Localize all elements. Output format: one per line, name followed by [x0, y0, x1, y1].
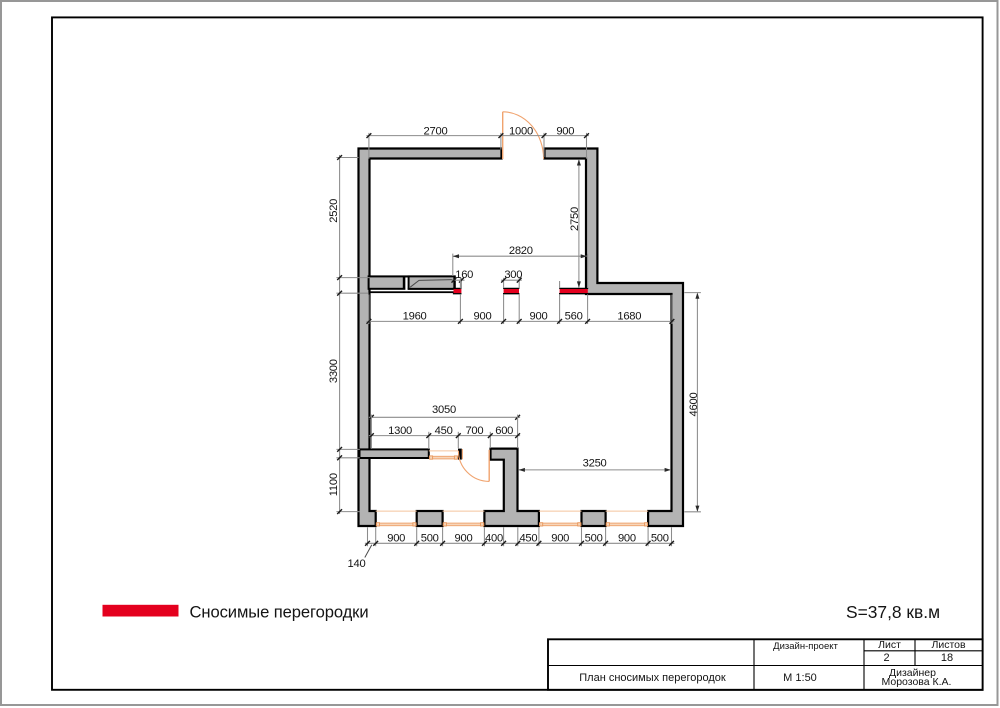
- svg-text:2700: 2700: [424, 125, 448, 137]
- svg-text:900: 900: [530, 311, 548, 323]
- svg-text:1680: 1680: [617, 311, 641, 323]
- svg-text:140: 140: [348, 558, 366, 570]
- svg-text:Лист: Лист: [878, 639, 901, 651]
- svg-text:500: 500: [421, 532, 439, 544]
- svg-text:4600: 4600: [688, 393, 700, 417]
- svg-text:2520: 2520: [328, 199, 340, 223]
- svg-text:1100: 1100: [328, 473, 340, 496]
- svg-text:560: 560: [565, 311, 583, 323]
- svg-text:2: 2: [883, 652, 889, 664]
- svg-text:600: 600: [495, 425, 513, 437]
- svg-text:300: 300: [504, 269, 522, 281]
- svg-text:План сносимых перегородок: План сносимых перегородок: [579, 672, 726, 684]
- svg-text:Сносимые перегородки: Сносимые перегородки: [190, 602, 369, 621]
- svg-text:Листов: Листов: [931, 639, 966, 651]
- svg-text:450: 450: [519, 532, 537, 544]
- svg-text:900: 900: [455, 532, 473, 544]
- svg-text:1300: 1300: [388, 425, 412, 437]
- svg-text:500: 500: [651, 532, 669, 544]
- svg-text:М 1:50: М 1:50: [783, 672, 817, 684]
- svg-text:2820: 2820: [509, 245, 533, 257]
- svg-text:900: 900: [474, 311, 492, 323]
- svg-text:3300: 3300: [328, 359, 340, 383]
- svg-text:900: 900: [551, 532, 569, 544]
- svg-text:2750: 2750: [569, 207, 581, 231]
- svg-text:1960: 1960: [403, 311, 427, 323]
- svg-text:900: 900: [556, 125, 574, 137]
- svg-text:3050: 3050: [432, 404, 456, 416]
- svg-text:900: 900: [618, 532, 636, 544]
- svg-text:3250: 3250: [583, 458, 607, 470]
- svg-text:Дизайн-проект: Дизайн-проект: [773, 641, 838, 652]
- svg-text:900: 900: [387, 532, 405, 544]
- svg-text:450: 450: [435, 425, 453, 437]
- svg-text:400: 400: [485, 532, 503, 544]
- svg-text:500: 500: [585, 532, 603, 544]
- svg-text:700: 700: [465, 425, 483, 437]
- svg-text:160: 160: [455, 269, 473, 281]
- svg-text:S=37,8 кв.м: S=37,8 кв.м: [846, 602, 940, 622]
- svg-text:Морозова К.А.: Морозова К.А.: [882, 676, 952, 688]
- svg-text:1000: 1000: [509, 125, 533, 137]
- svg-text:18: 18: [941, 652, 953, 664]
